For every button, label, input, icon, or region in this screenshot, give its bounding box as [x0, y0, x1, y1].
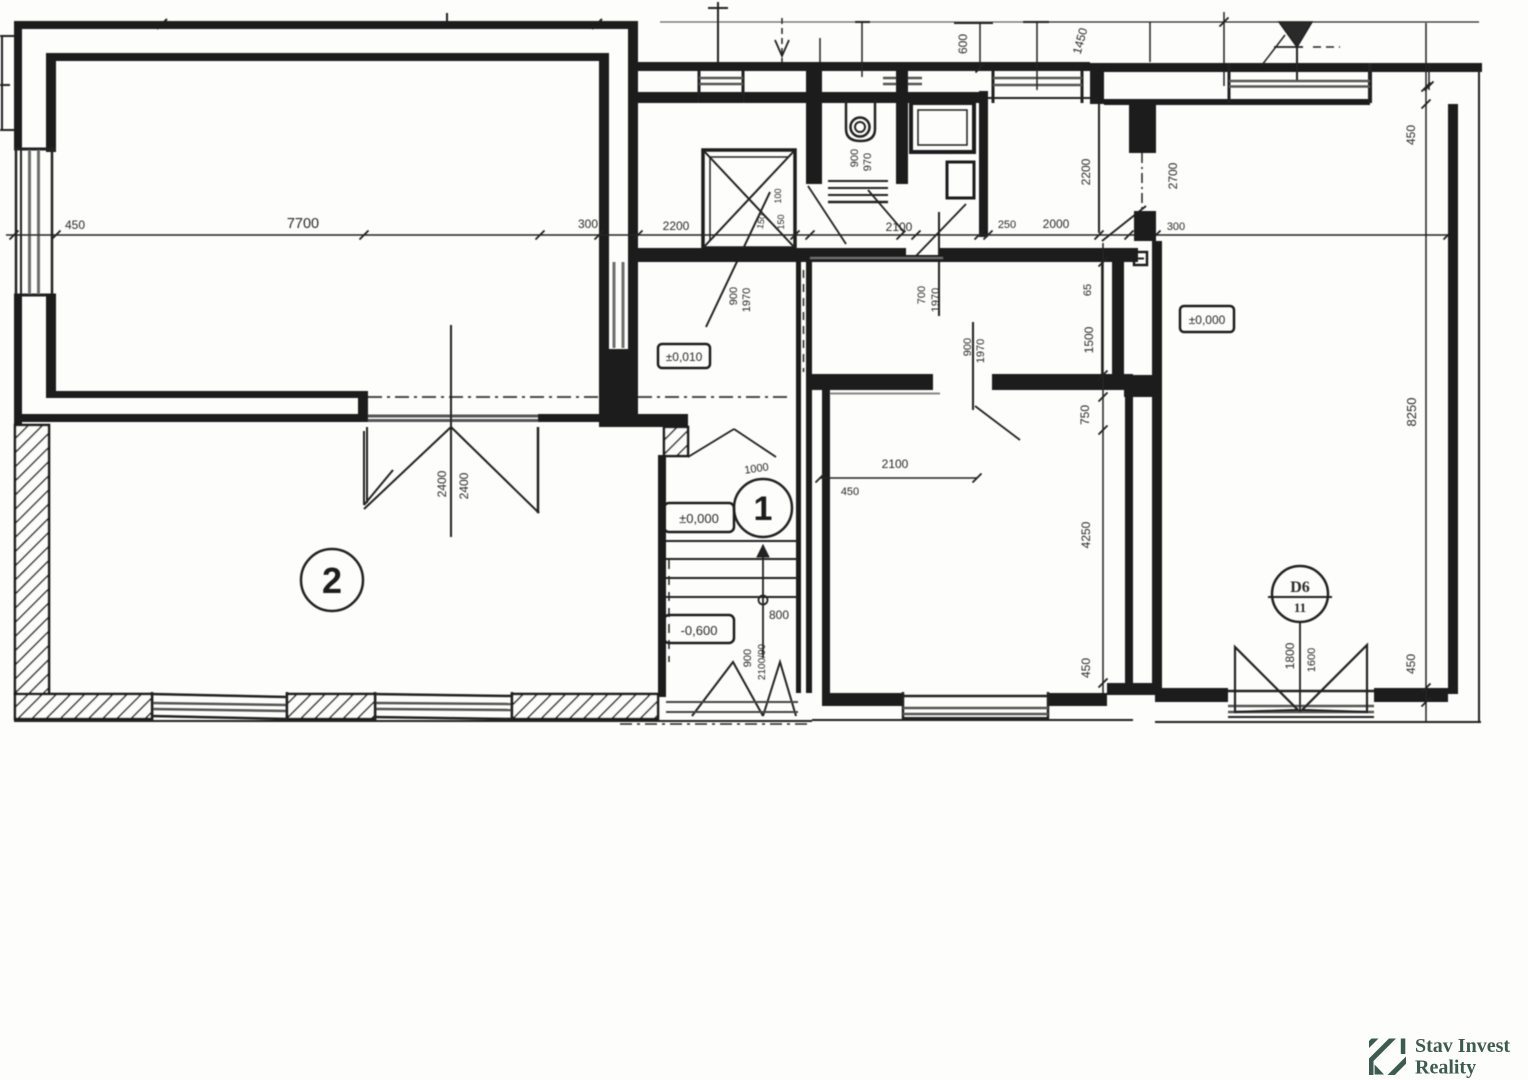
svg-text:11: 11 [1294, 600, 1306, 615]
svg-text:Reality: Reality [1415, 1057, 1476, 1079]
svg-text:2200: 2200 [1079, 158, 1093, 185]
svg-text:1970: 1970 [975, 339, 987, 363]
svg-text:300: 300 [1167, 221, 1185, 233]
svg-text:1500: 1500 [1082, 326, 1096, 353]
svg-text:±0,010: ±0,010 [666, 350, 703, 364]
svg-text:2400: 2400 [457, 472, 471, 499]
svg-text:8250: 8250 [1404, 398, 1419, 427]
svg-text:2100: 2100 [886, 220, 913, 234]
svg-text:450: 450 [65, 218, 85, 232]
svg-text:970: 970 [862, 153, 874, 171]
svg-text:900: 900 [742, 649, 754, 667]
svg-text:2100/90: 2100/90 [757, 643, 768, 680]
svg-text:2400: 2400 [435, 470, 449, 497]
svg-text:7700: 7700 [287, 216, 319, 232]
svg-text:D6: D6 [1290, 579, 1310, 596]
svg-text:1: 1 [754, 490, 773, 528]
svg-text:700: 700 [916, 286, 928, 304]
svg-text:1800: 1800 [1283, 642, 1297, 669]
svg-text:2: 2 [322, 560, 342, 601]
svg-text:65: 65 [1082, 284, 1094, 296]
svg-text:2000: 2000 [1043, 217, 1070, 231]
svg-text:900: 900 [728, 287, 740, 305]
svg-text:Stav Invest: Stav Invest [1415, 1035, 1510, 1057]
svg-text:450: 450 [1079, 658, 1093, 678]
svg-text:450: 450 [841, 486, 859, 498]
svg-text:150: 150 [776, 214, 786, 229]
svg-text:300: 300 [578, 217, 598, 231]
svg-text:900: 900 [849, 149, 861, 167]
svg-text:750: 750 [1078, 405, 1092, 425]
svg-text:600: 600 [956, 34, 970, 54]
svg-text:1970: 1970 [930, 288, 942, 312]
svg-text:900: 900 [962, 338, 974, 356]
svg-text:450: 450 [1404, 654, 1418, 674]
svg-text:100: 100 [773, 188, 783, 203]
svg-text:450: 450 [1404, 125, 1418, 145]
svg-text:±0,000: ±0,000 [1189, 313, 1226, 327]
svg-text:4250: 4250 [1079, 521, 1093, 548]
svg-text:800: 800 [769, 608, 789, 622]
svg-text:-0,600: -0,600 [681, 623, 718, 638]
svg-text:2700: 2700 [1166, 162, 1180, 189]
svg-text:250: 250 [998, 219, 1016, 231]
svg-text:2200: 2200 [663, 219, 690, 233]
svg-text:1600: 1600 [1306, 648, 1318, 672]
svg-text:1970: 1970 [741, 288, 753, 312]
svg-text:±0,000: ±0,000 [679, 511, 719, 526]
svg-text:2100: 2100 [882, 457, 909, 471]
